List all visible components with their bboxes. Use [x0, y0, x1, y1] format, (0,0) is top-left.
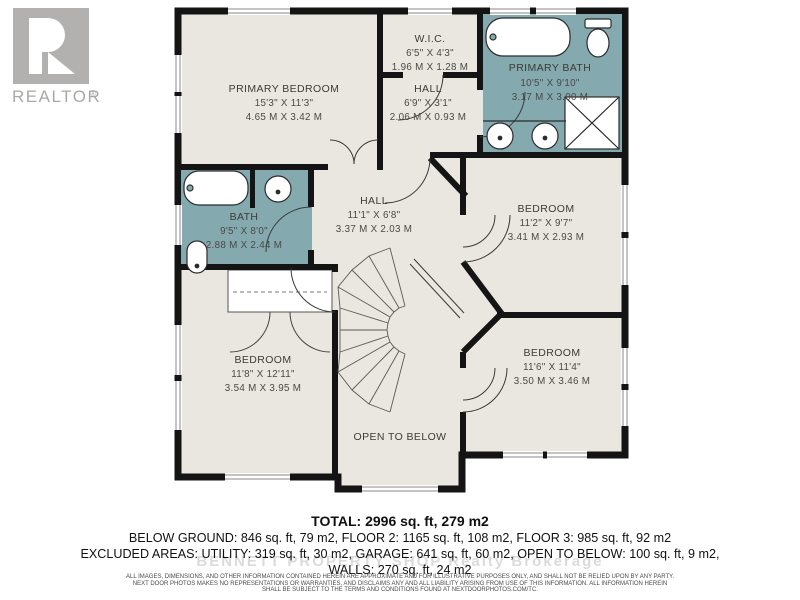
shower-icon: [565, 97, 619, 149]
svg-text:BEDROOM: BEDROOM: [517, 203, 574, 215]
svg-text:3.17 M X 3.00 M: 3.17 M X 3.00 M: [512, 92, 588, 103]
svg-text:3.37 M X 2.03 M: 3.37 M X 2.03 M: [336, 224, 412, 235]
svg-text:PRIMARY BEDROOM: PRIMARY BEDROOM: [229, 83, 340, 95]
svg-text:BEDROOM: BEDROOM: [523, 347, 580, 359]
svg-text:15'3" X 11'3": 15'3" X 11'3": [255, 98, 314, 109]
summary-total: TOTAL: 2996 sq. ft, 279 m2: [0, 513, 800, 530]
sink-icon: [487, 123, 513, 149]
disclaimer: ALL IMAGES, DIMENSIONS, AND OTHER INFORM…: [0, 574, 800, 594]
svg-text:W.I.C.: W.I.C.: [415, 33, 446, 45]
disclaimer-line-3: SHALL BE SUBJECT TO THE TERMS AND CONDIT…: [0, 587, 800, 594]
floor-plan-svg: PRIMARY BEDROOM 15'3" X 11'3" 4.65 M X 3…: [0, 0, 800, 515]
svg-text:11'8" X 12'11": 11'8" X 12'11": [231, 369, 295, 380]
toilet-icon: [585, 19, 611, 57]
svg-text:1.96 M X 1.28 M: 1.96 M X 1.28 M: [392, 62, 468, 73]
open-to-below-label: OPEN TO BELOW: [354, 431, 447, 443]
svg-text:BATH: BATH: [230, 211, 259, 223]
svg-text:11'6" X 11'4": 11'6" X 11'4": [523, 362, 581, 373]
room-label-bedroom-bottom-right: BEDROOM 11'6" X 11'4" 3.50 M X 3.46 M: [514, 347, 590, 387]
bathtub-icon: [486, 18, 570, 56]
room-label-primary-bath: PRIMARY BATH 10'5" X 9'10" 3.17 M X 3.00…: [509, 62, 591, 103]
svg-text:9'5" X 8'0": 9'5" X 8'0": [220, 226, 268, 237]
svg-text:3.50 M X 3.46 M: 3.50 M X 3.46 M: [514, 376, 590, 387]
svg-text:11'2" X 9'7": 11'2" X 9'7": [520, 218, 573, 229]
svg-text:10'5" X 9'10": 10'5" X 9'10": [520, 78, 579, 89]
sink-icon: [265, 176, 291, 202]
toilet-icon: [187, 241, 207, 273]
svg-text:4.65 M X 3.42 M: 4.65 M X 3.42 M: [246, 112, 322, 123]
svg-text:2.88 M X 2.44 M: 2.88 M X 2.44 M: [206, 240, 282, 251]
svg-text:3.54 M X 3.95 M: 3.54 M X 3.95 M: [225, 383, 301, 394]
sink-icon: [532, 123, 558, 149]
svg-text:PRIMARY BATH: PRIMARY BATH: [509, 62, 591, 74]
floor-plan-page: REALTOR ®: [0, 0, 800, 600]
bathtub-icon: [184, 171, 248, 205]
svg-text:3.41 M X 2.93 M: 3.41 M X 2.93 M: [508, 232, 584, 243]
summary-line-floors: BELOW GROUND: 846 sq. ft, 79 m2, FLOOR 2…: [0, 530, 800, 546]
room-label-bedroom-bottom-left: BEDROOM 11'8" X 12'11" 3.54 M X 3.95 M: [225, 354, 301, 394]
svg-text:6'5" X 4'3": 6'5" X 4'3": [406, 48, 454, 59]
svg-text:HALL: HALL: [360, 195, 388, 207]
svg-text:2.06 M X 0.93 M: 2.06 M X 0.93 M: [390, 112, 466, 123]
svg-text:11'1" X 6'8": 11'1" X 6'8": [348, 210, 401, 221]
area-summary: TOTAL: 2996 sq. ft, 279 m2 BELOW GROUND:…: [0, 513, 800, 578]
svg-text:BEDROOM: BEDROOM: [234, 354, 291, 366]
svg-text:6'9" X 3'1": 6'9" X 3'1": [404, 98, 452, 109]
summary-line-excluded: EXCLUDED AREAS: UTILITY: 319 sq. ft, 30 …: [0, 546, 800, 562]
svg-text:HALL: HALL: [414, 83, 442, 95]
